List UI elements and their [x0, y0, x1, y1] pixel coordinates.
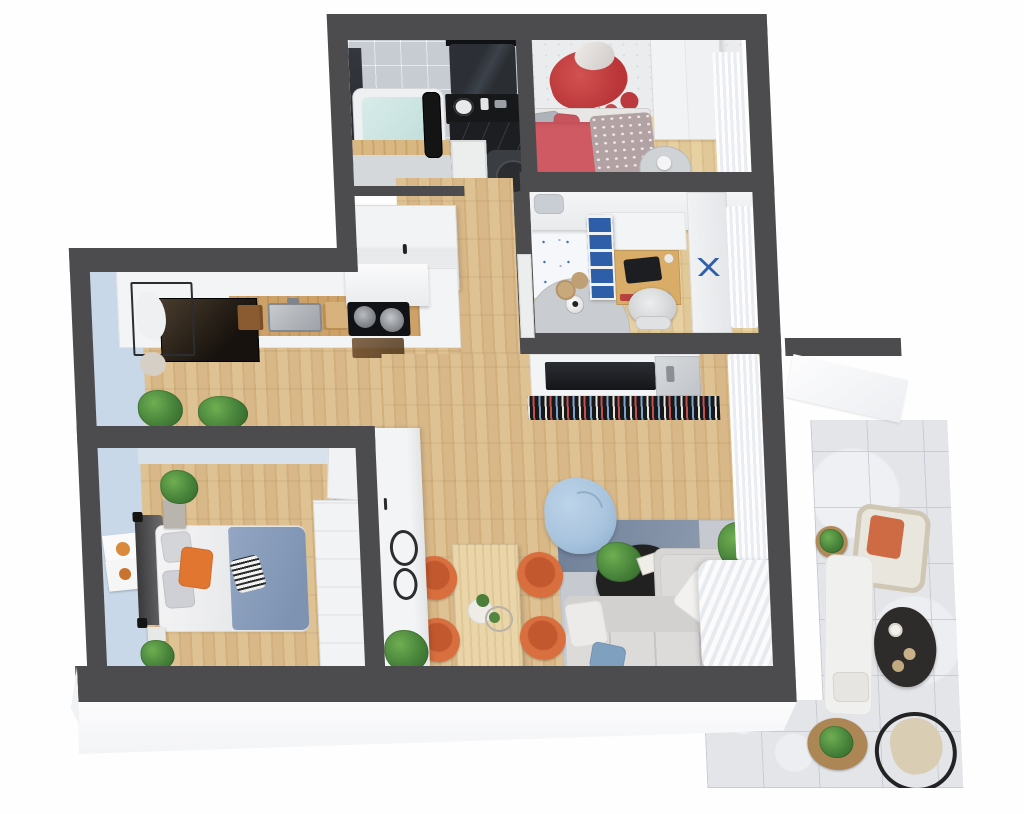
room-kids-bedroom [525, 28, 747, 176]
tv-screen [545, 362, 656, 390]
loft-bed-pillow [533, 194, 564, 214]
wicker-armchair-cushion [866, 514, 905, 559]
room-living-dining [381, 354, 773, 672]
shelf-decor [666, 366, 675, 382]
dining-chair [516, 552, 564, 598]
media-shelf-books [527, 396, 720, 420]
football-patch [572, 301, 578, 307]
teen-shelf-top [601, 212, 687, 250]
cabinet-handle [384, 498, 388, 510]
kids-curtain [712, 52, 747, 176]
centerpiece-plant [489, 612, 500, 623]
kids-table-lamp [657, 156, 672, 170]
headboard-post [137, 618, 147, 628]
apartment-plan [0, 0, 1024, 814]
wall-tv [520, 333, 782, 354]
bed-pillow-orange [178, 546, 214, 590]
storage-basket [571, 272, 589, 289]
vanity-sink [453, 98, 474, 116]
wall-bedroom-top [77, 426, 376, 448]
wardrobe-handle [403, 244, 407, 254]
wall-bath-south-line [344, 186, 464, 196]
cubby-shelf-blue [586, 215, 616, 300]
pan [353, 306, 376, 328]
balcony-divider-wall [785, 338, 902, 356]
room-master-bedroom [97, 428, 366, 672]
wall-bottom [75, 666, 797, 702]
vanity-mirror [449, 44, 517, 96]
coaster [903, 648, 916, 660]
centerpiece-plant [476, 594, 490, 607]
teen-laptop [623, 256, 662, 284]
nightstand [147, 627, 166, 641]
towel-ladder [422, 92, 443, 158]
balcony-plant-small [819, 529, 844, 553]
wall-kids-teen [520, 172, 775, 192]
living-drape [697, 560, 773, 672]
balcony-divider-face [785, 354, 907, 423]
coffee-cup [888, 623, 903, 637]
wall-kitchen-top [69, 248, 358, 272]
knife-block [237, 305, 260, 330]
pan [379, 308, 404, 332]
toiletries [480, 98, 489, 110]
wall-top [333, 14, 768, 40]
coaster [892, 660, 905, 672]
floorplan-render [0, 0, 1024, 814]
wall-art-circle [119, 568, 132, 580]
lounger-pillow [832, 672, 869, 702]
slab-bottom [77, 702, 799, 754]
tv-side-shelf [655, 356, 702, 396]
x-mark-blue [697, 258, 720, 276]
room-teen [529, 192, 758, 333]
dining-chair [519, 616, 567, 660]
sink-faucet [287, 298, 299, 304]
headboard-post [132, 512, 142, 522]
kitchen-sink [267, 303, 322, 332]
rack-stool [139, 352, 166, 376]
nightstand [163, 500, 186, 528]
faucet [494, 100, 506, 108]
bedroom-console [313, 500, 366, 670]
desk-lamp [664, 254, 673, 263]
wall-art-circle [116, 542, 131, 556]
office-chair-back [635, 316, 672, 330]
sofa-pillow-white [564, 600, 609, 649]
